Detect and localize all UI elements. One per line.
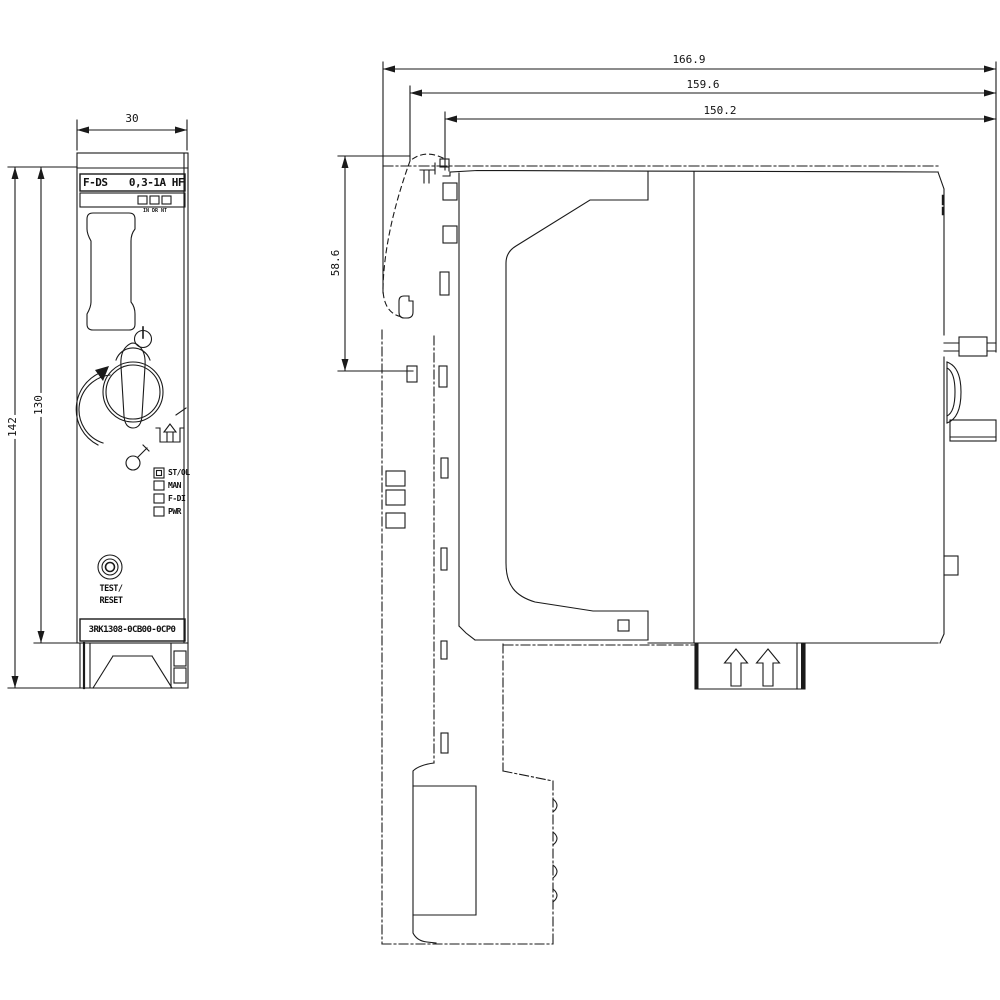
dim-label-front-height: 58.6 [330,248,342,279]
dip-caption: IN DR NT [143,208,167,214]
dim-depth-166-9 [383,62,996,352]
product-label: F-DS 0,3-1A HF [81,175,186,189]
dim-label-height-total: 142 [7,415,19,439]
bottom-connector-block [695,643,805,689]
dim-depth-150-2 [445,112,996,170]
led-label-pwr: PWR [168,507,181,517]
button-label-test: TEST/ [99,584,122,595]
dim-depth-159-6 [410,86,996,160]
dip-switch-box [80,193,185,207]
test-reset-button[interactable] [98,555,122,579]
part-number: 3RK1308-0CB00-0CP0 [89,625,176,635]
support-bracket [413,763,476,943]
side-body-outline [450,171,958,644]
key-icon [126,445,149,470]
rotary-handle[interactable] [103,343,163,428]
terminal-block [950,420,996,441]
led-panel [154,468,164,516]
mounting-foot [80,643,188,688]
vent-slots [386,183,457,753]
accessory-phantom [382,330,694,944]
dim-label-depth-mid: 159.6 [684,79,721,91]
up-arrows-icon [725,649,780,686]
handle-swing-phantom [383,154,443,318]
side-view [338,62,996,944]
side-latch-detail [947,362,961,423]
rotation-arrow-icon [76,366,110,445]
drawing-lineart [0,0,1000,1000]
front-body-outline [77,153,188,643]
dim-label-depth-total: 166.9 [670,54,707,66]
led-st-ol [154,468,164,478]
power-icon [135,327,152,348]
led-man [154,481,164,490]
dip-square [150,196,159,204]
dim-label-depth-body: 150.2 [701,105,738,117]
product-label-type: F-DS [83,176,108,189]
terminal-lug [944,337,996,356]
led-label-st-ol: ST/OL [168,468,190,478]
led-label-f-di: F-DI [168,494,185,504]
dip-square [138,196,147,204]
dim-height-142 [8,167,85,688]
product-label-rating: 0,3-1A HF [129,176,184,189]
led-pwr [154,507,164,516]
button-label-reset: RESET [99,596,122,607]
dim-label-height-body: 130 [33,393,45,417]
release-icon [156,408,186,442]
dip-square [162,196,171,204]
cover-outline [475,172,648,640]
led-f-di [154,494,164,503]
led-label-man: MAN [168,481,181,491]
dim-label-width: 30 [123,113,140,125]
window-opening [87,213,135,330]
dim-front-height-58-6 [338,156,413,371]
dimension-drawing: 30 142 130 166.9 159.6 150.2 58.6 F-DS 0… [0,0,1000,1000]
